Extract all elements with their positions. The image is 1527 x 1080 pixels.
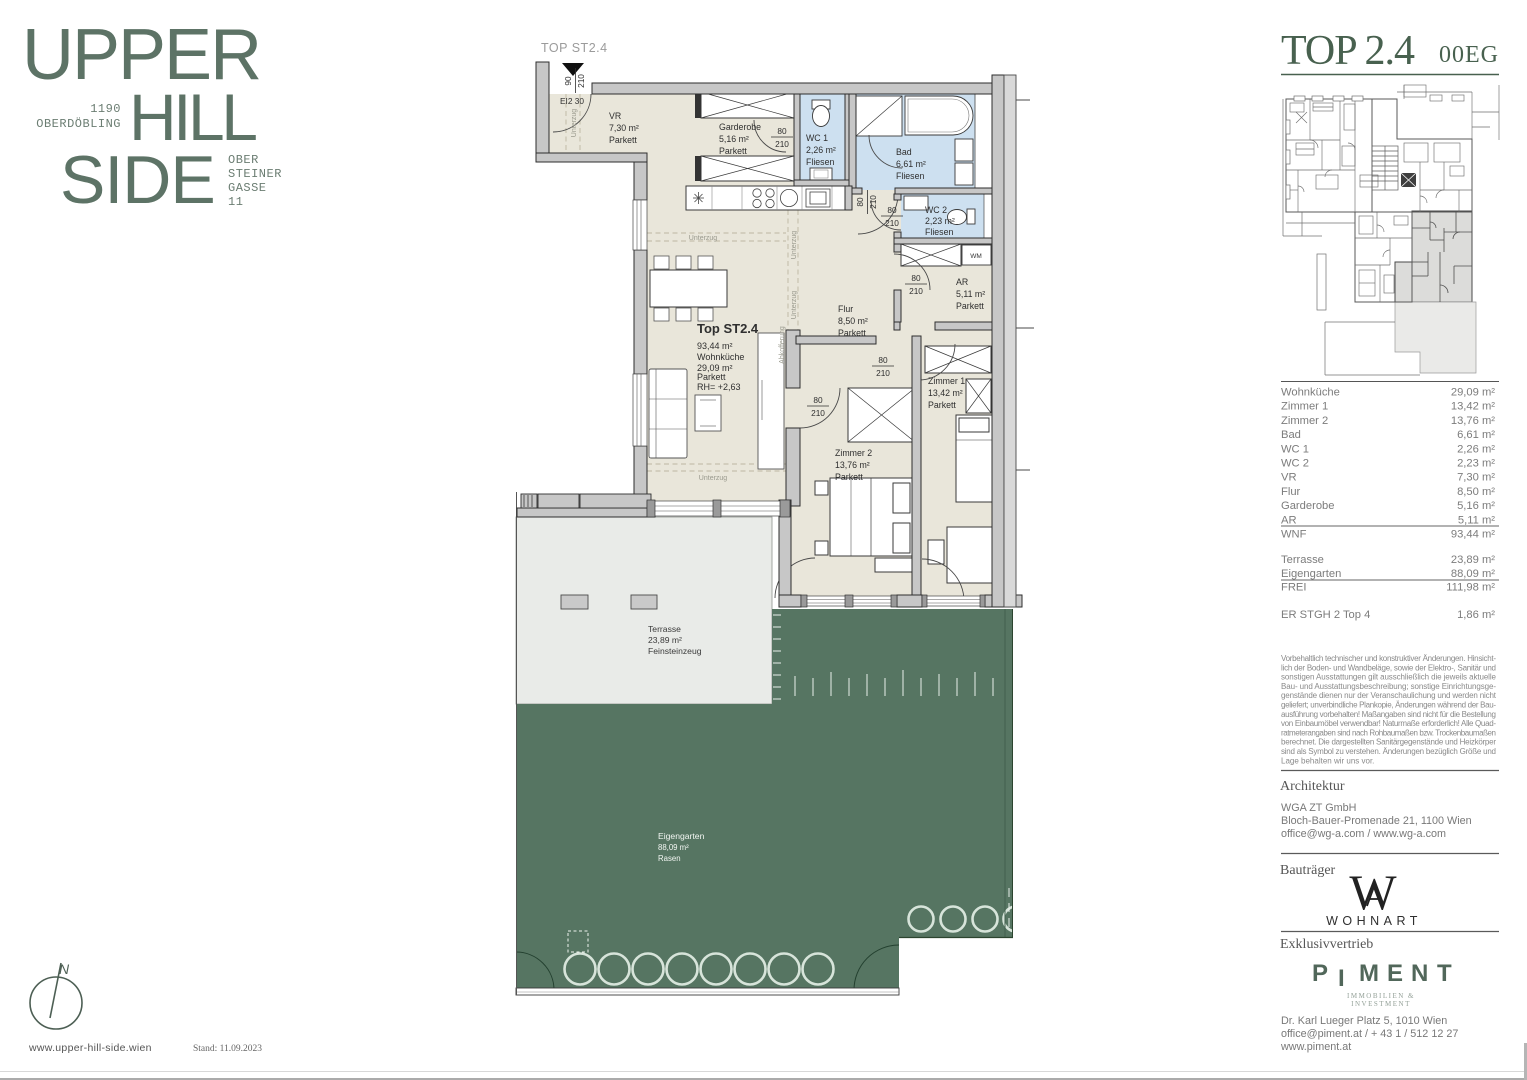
svg-text:N: N bbox=[1411, 960, 1428, 987]
svg-text:Garderobe: Garderobe bbox=[719, 122, 761, 132]
svg-text:Bad: Bad bbox=[896, 147, 912, 157]
svg-text:Rasen: Rasen bbox=[658, 854, 681, 863]
svg-text:Stand: 11.09.2023: Stand: 11.09.2023 bbox=[193, 1044, 262, 1054]
svg-text:IMMOBILIEN &: IMMOBILIEN & bbox=[1347, 992, 1415, 1000]
svg-text:Parkett: Parkett bbox=[838, 328, 866, 338]
svg-text:8,50 m²: 8,50 m² bbox=[838, 316, 868, 326]
svg-text:2,23 m²: 2,23 m² bbox=[1457, 458, 1495, 470]
svg-text:office@wg-a.com / www.wg-a.com: office@wg-a.com / www.wg-a.com bbox=[1281, 828, 1446, 840]
svg-text:Garderobe: Garderobe bbox=[1281, 500, 1335, 512]
svg-text:210: 210 bbox=[909, 286, 923, 296]
svg-text:Unterzug: Unterzug bbox=[689, 235, 718, 242]
svg-text:Wohnküche: Wohnküche bbox=[697, 352, 744, 362]
svg-text:Parkett: Parkett bbox=[928, 400, 956, 410]
svg-text:210: 210 bbox=[811, 408, 825, 418]
svg-text:111,98 m²: 111,98 m² bbox=[1446, 582, 1495, 594]
svg-text:Parkett: Parkett bbox=[719, 146, 747, 156]
svg-text:5,16 m²: 5,16 m² bbox=[719, 134, 749, 144]
svg-text:Unterzug: Unterzug bbox=[571, 109, 578, 138]
svg-text:80: 80 bbox=[813, 395, 823, 405]
svg-text:Exklusivvertrieb: Exklusivvertrieb bbox=[1280, 937, 1373, 952]
svg-text:E: E bbox=[1387, 960, 1403, 987]
svg-text:13,42 m²: 13,42 m² bbox=[928, 388, 963, 398]
svg-text:13,76 m²: 13,76 m² bbox=[835, 460, 870, 470]
svg-text:2,23 m²: 2,23 m² bbox=[925, 216, 955, 226]
svg-text:Abkofferung: Abkofferung bbox=[779, 326, 786, 364]
svg-text:lich der Boden- und Wandbeläge: lich der Boden- und Wandbeläge, sowie de… bbox=[1281, 663, 1496, 672]
svg-text:OBER: OBER bbox=[228, 153, 259, 167]
svg-text:1,86 m²: 1,86 m² bbox=[1457, 609, 1495, 621]
svg-text:6,61 m²: 6,61 m² bbox=[896, 159, 926, 169]
svg-text:T: T bbox=[1437, 960, 1452, 987]
svg-text:OBERDÖBLING: OBERDÖBLING bbox=[36, 117, 121, 131]
svg-text:INVESTMENT: INVESTMENT bbox=[1351, 1000, 1411, 1008]
svg-text:88,09 m²: 88,09 m² bbox=[658, 843, 689, 852]
svg-text:genstände dienen nur der Veran: genstände dienen nur der Veranschaulichu… bbox=[1281, 691, 1497, 700]
svg-text:5,11 m²: 5,11 m² bbox=[1458, 514, 1495, 526]
svg-text:5,11 m²: 5,11 m² bbox=[956, 289, 985, 299]
svg-text:80: 80 bbox=[878, 355, 888, 365]
svg-text:STEINER: STEINER bbox=[228, 167, 282, 181]
svg-text:93,44 m²: 93,44 m² bbox=[697, 341, 733, 351]
svg-text:Architektur: Architektur bbox=[1280, 779, 1345, 794]
svg-text:Vorbehaltlich technischer und: Vorbehaltlich technischer und konstrukti… bbox=[1281, 654, 1496, 663]
svg-text:Bad: Bad bbox=[1281, 429, 1301, 441]
svg-text:RH= +2,63: RH= +2,63 bbox=[697, 382, 741, 392]
svg-text:VR: VR bbox=[609, 111, 621, 121]
svg-text:Terrasse: Terrasse bbox=[1281, 554, 1324, 566]
svg-text:Bauträger: Bauträger bbox=[1280, 863, 1336, 878]
svg-text:WC 2: WC 2 bbox=[1281, 458, 1309, 470]
svg-text:Flur: Flur bbox=[1281, 486, 1301, 498]
svg-text:www.upper-hill-side.wien: www.upper-hill-side.wien bbox=[28, 1042, 152, 1054]
svg-text:P: P bbox=[1312, 960, 1328, 987]
svg-text:WC 1: WC 1 bbox=[1281, 443, 1309, 455]
svg-text:00EG: 00EG bbox=[1439, 42, 1499, 68]
svg-text:11: 11 bbox=[228, 195, 243, 209]
svg-text:Fliesen: Fliesen bbox=[806, 157, 834, 167]
svg-text:VR: VR bbox=[1281, 472, 1297, 484]
svg-text:WGA ZT GmbH: WGA ZT GmbH bbox=[1281, 802, 1356, 814]
svg-text:7,30 m²: 7,30 m² bbox=[1457, 472, 1495, 484]
svg-text:Bau- und Ausstattungsbeschreib: Bau- und Ausstattungsbeschreibung; sonst… bbox=[1281, 682, 1496, 691]
svg-text:M: M bbox=[1359, 960, 1379, 987]
svg-text:GASSE: GASSE bbox=[228, 181, 267, 195]
svg-text:Fliesen: Fliesen bbox=[896, 171, 924, 181]
svg-text:berechnet. Die dargestellten S: berechnet. Die dargestellten Sanitärgege… bbox=[1281, 738, 1496, 747]
svg-text:sonstigen Ausstattungen gilt a: sonstigen Ausstattungen gilt ausschließl… bbox=[1281, 673, 1497, 682]
svg-text:80: 80 bbox=[777, 126, 787, 136]
svg-text:TOP ST2.4: TOP ST2.4 bbox=[541, 41, 608, 55]
svg-text:geliefert; unverbindliche Plan: geliefert; unverbindliche Plankopie, Änd… bbox=[1281, 701, 1496, 710]
svg-text:7,30 m²: 7,30 m² bbox=[609, 123, 639, 133]
svg-text:Wohnküche: Wohnküche bbox=[1281, 387, 1340, 399]
svg-text:2,26 m²: 2,26 m² bbox=[1457, 443, 1495, 455]
svg-text:WC 2: WC 2 bbox=[925, 205, 947, 215]
svg-text:88,09 m²: 88,09 m² bbox=[1451, 568, 1495, 580]
svg-text:80: 80 bbox=[911, 273, 921, 283]
svg-text:TOP 2.4: TOP 2.4 bbox=[1281, 28, 1415, 74]
svg-text:Bloch-Bauer-Promenade 21, 1100: Bloch-Bauer-Promenade 21, 1100 Wien bbox=[1281, 815, 1472, 827]
svg-text:210: 210 bbox=[885, 218, 899, 228]
svg-text:Zimmer 1: Zimmer 1 bbox=[928, 376, 965, 386]
svg-text:1190: 1190 bbox=[90, 102, 121, 116]
svg-text:Zimmer 1: Zimmer 1 bbox=[1281, 401, 1328, 413]
svg-text:Top ST2.4: Top ST2.4 bbox=[697, 321, 759, 336]
svg-text:80: 80 bbox=[887, 205, 897, 215]
svg-text:93,44 m²: 93,44 m² bbox=[1451, 529, 1495, 541]
svg-text:WOHNART: WOHNART bbox=[1326, 914, 1422, 928]
svg-text:Zimmer 2: Zimmer 2 bbox=[835, 448, 872, 458]
svg-text:Zimmer 2: Zimmer 2 bbox=[1281, 415, 1328, 427]
svg-text:WM: WM bbox=[970, 253, 982, 260]
svg-text:Lage behalten wir uns vor.: Lage behalten wir uns vor. bbox=[1281, 756, 1374, 765]
svg-text:SIDE: SIDE bbox=[60, 142, 215, 218]
svg-text:80: 80 bbox=[855, 197, 865, 207]
svg-text:Unterzug: Unterzug bbox=[791, 291, 798, 320]
svg-text:WC 1: WC 1 bbox=[806, 133, 828, 143]
svg-text:2,26 m²: 2,26 m² bbox=[806, 145, 836, 155]
svg-text:23,89 m²: 23,89 m² bbox=[648, 635, 682, 645]
svg-text:Dr. Karl Lueger Platz 5, 1010: Dr. Karl Lueger Platz 5, 1010 Wien bbox=[1281, 1015, 1447, 1027]
svg-text:Parkett: Parkett bbox=[697, 372, 726, 382]
svg-text:Parkett: Parkett bbox=[609, 135, 637, 145]
svg-text:Flur: Flur bbox=[838, 304, 853, 314]
svg-text:Feinsteinzeug: Feinsteinzeug bbox=[648, 646, 702, 656]
svg-text:ratmeterangaben sind nach Rohb: ratmeterangaben sind nach Rohbaumaßen bz… bbox=[1281, 728, 1496, 737]
svg-text:210: 210 bbox=[876, 368, 890, 378]
svg-text:210: 210 bbox=[775, 139, 789, 149]
svg-text:13,76 m²: 13,76 m² bbox=[1451, 415, 1495, 427]
svg-text:www.piment.at: www.piment.at bbox=[1280, 1041, 1351, 1053]
svg-text:23,89 m²: 23,89 m² bbox=[1451, 554, 1495, 566]
svg-text:13,42 m²: 13,42 m² bbox=[1451, 401, 1495, 413]
svg-text:EI2 30: EI2 30 bbox=[560, 96, 584, 106]
svg-text:FREI: FREI bbox=[1281, 582, 1306, 594]
svg-text:Terrasse: Terrasse bbox=[648, 624, 681, 634]
svg-text:90: 90 bbox=[563, 76, 573, 86]
svg-text:Eigengarten: Eigengarten bbox=[658, 831, 705, 841]
svg-text:5,16 m²: 5,16 m² bbox=[1457, 500, 1495, 512]
svg-text:6,61 m²: 6,61 m² bbox=[1457, 429, 1495, 441]
svg-text:von Einbaumöbel verwendbar! Na: von Einbaumöbel verwendbar! Naturmaße er… bbox=[1281, 719, 1496, 728]
svg-text:N: N bbox=[59, 961, 70, 977]
svg-text:29,09 m²: 29,09 m² bbox=[1451, 387, 1495, 399]
svg-text:8,50 m²: 8,50 m² bbox=[1457, 486, 1495, 498]
svg-text:ER STGH 2 Top 4: ER STGH 2 Top 4 bbox=[1281, 609, 1370, 621]
svg-text:Eigengarten: Eigengarten bbox=[1281, 568, 1341, 580]
svg-text:Parkett: Parkett bbox=[835, 472, 863, 482]
svg-text:W: W bbox=[1349, 864, 1397, 920]
svg-text:ausführung vorbehalten! Maßang: ausführung vorbehalten! Maßangaben sind … bbox=[1281, 710, 1496, 719]
svg-text:Fliesen: Fliesen bbox=[925, 227, 953, 237]
svg-text:Unterzug: Unterzug bbox=[791, 231, 798, 260]
svg-text:Parkett: Parkett bbox=[956, 301, 984, 311]
svg-text:sind als Symbol zu verstehen.: sind als Symbol zu verstehen. Änderungen… bbox=[1281, 747, 1496, 756]
svg-text:AR: AR bbox=[956, 277, 968, 287]
svg-text:office@piment.at / + 43 1 / 51: office@piment.at / + 43 1 / 512 12 27 bbox=[1281, 1028, 1458, 1040]
svg-text:Unterzug: Unterzug bbox=[699, 475, 728, 482]
svg-text:WNF: WNF bbox=[1281, 529, 1307, 541]
svg-text:AR: AR bbox=[1281, 514, 1297, 526]
svg-text:210: 210 bbox=[868, 195, 878, 209]
svg-text:210: 210 bbox=[576, 74, 586, 88]
svg-text:I: I bbox=[1338, 965, 1345, 992]
